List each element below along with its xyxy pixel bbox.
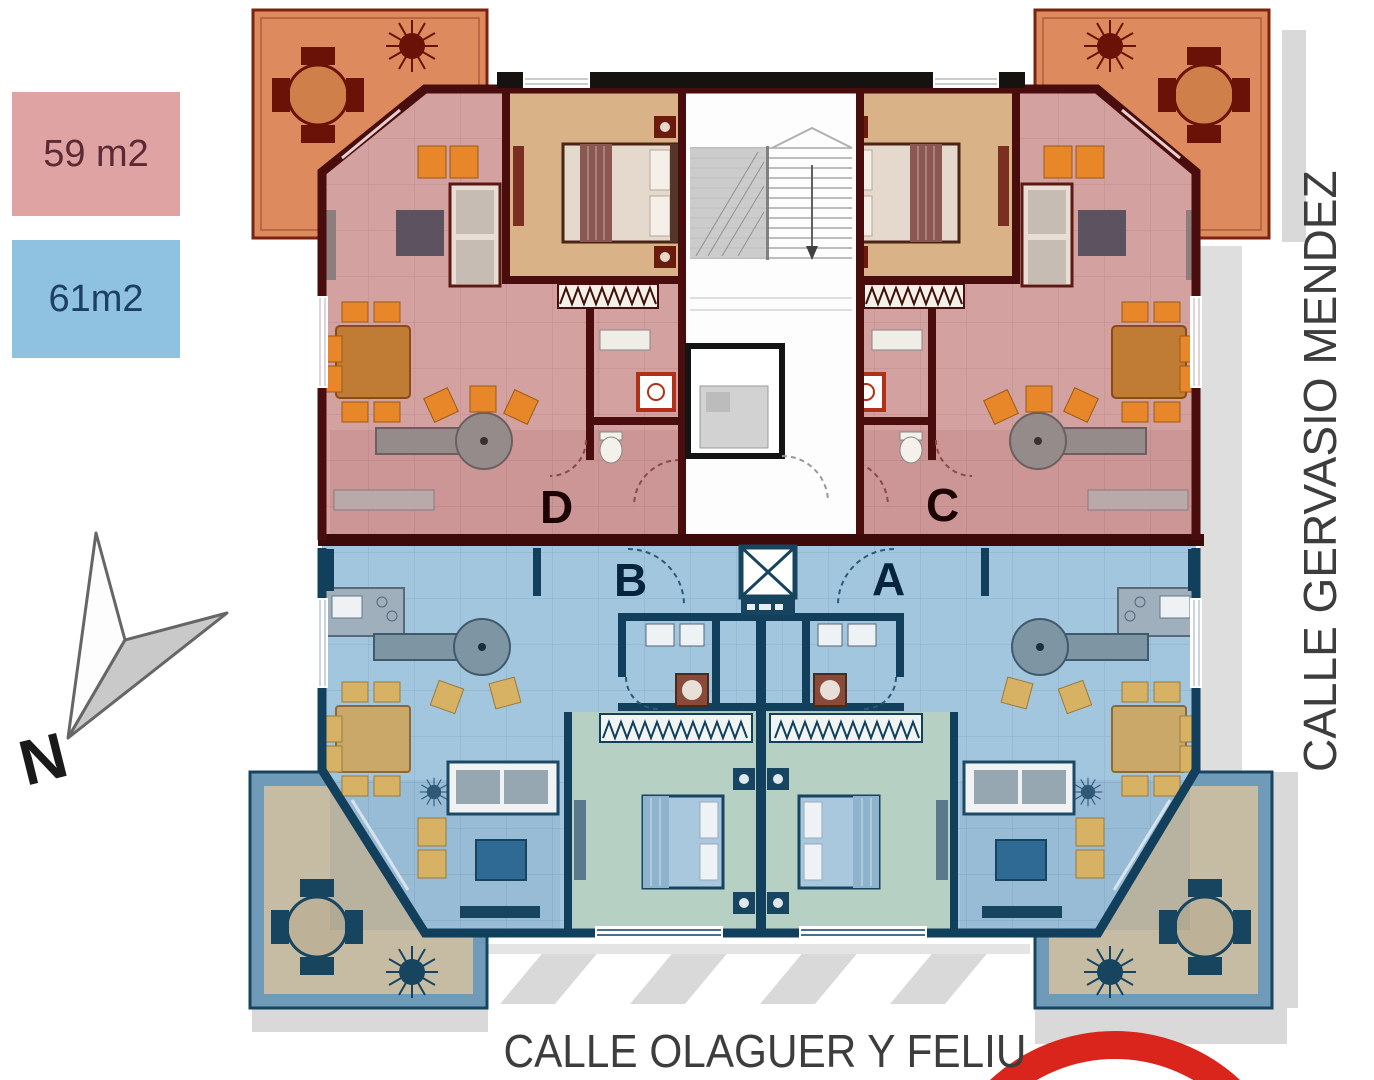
legend-label-61m2: 61m2 [48,278,143,321]
unit-label-a: A [872,552,905,606]
unit-label-c: C [926,478,959,532]
legend-swatch-59m2: 59 m2 [12,92,180,216]
north-arrow-icon [68,533,227,738]
floor-plan-drawing [0,0,1374,1080]
center-bedroom-left [564,712,761,937]
unit-label-b: B [614,553,647,607]
floor-plan-page: 59 m2 61m2 N D C B A CALLE OLAGUER Y FEL… [0,0,1374,1080]
center-bedroom-right [761,712,958,937]
legend-swatch-61m2: 61m2 [12,240,180,358]
street-label-right: CALLE GERVASIO MENDEZ [1292,252,1348,772]
legend-label-59m2: 59 m2 [43,133,149,176]
street-label-bottom: CALLE OLAGUER Y FELIU [448,1024,1083,1078]
elevator-shaft [741,547,795,615]
unit-label-d: D [540,480,573,534]
stairwell [678,87,864,539]
